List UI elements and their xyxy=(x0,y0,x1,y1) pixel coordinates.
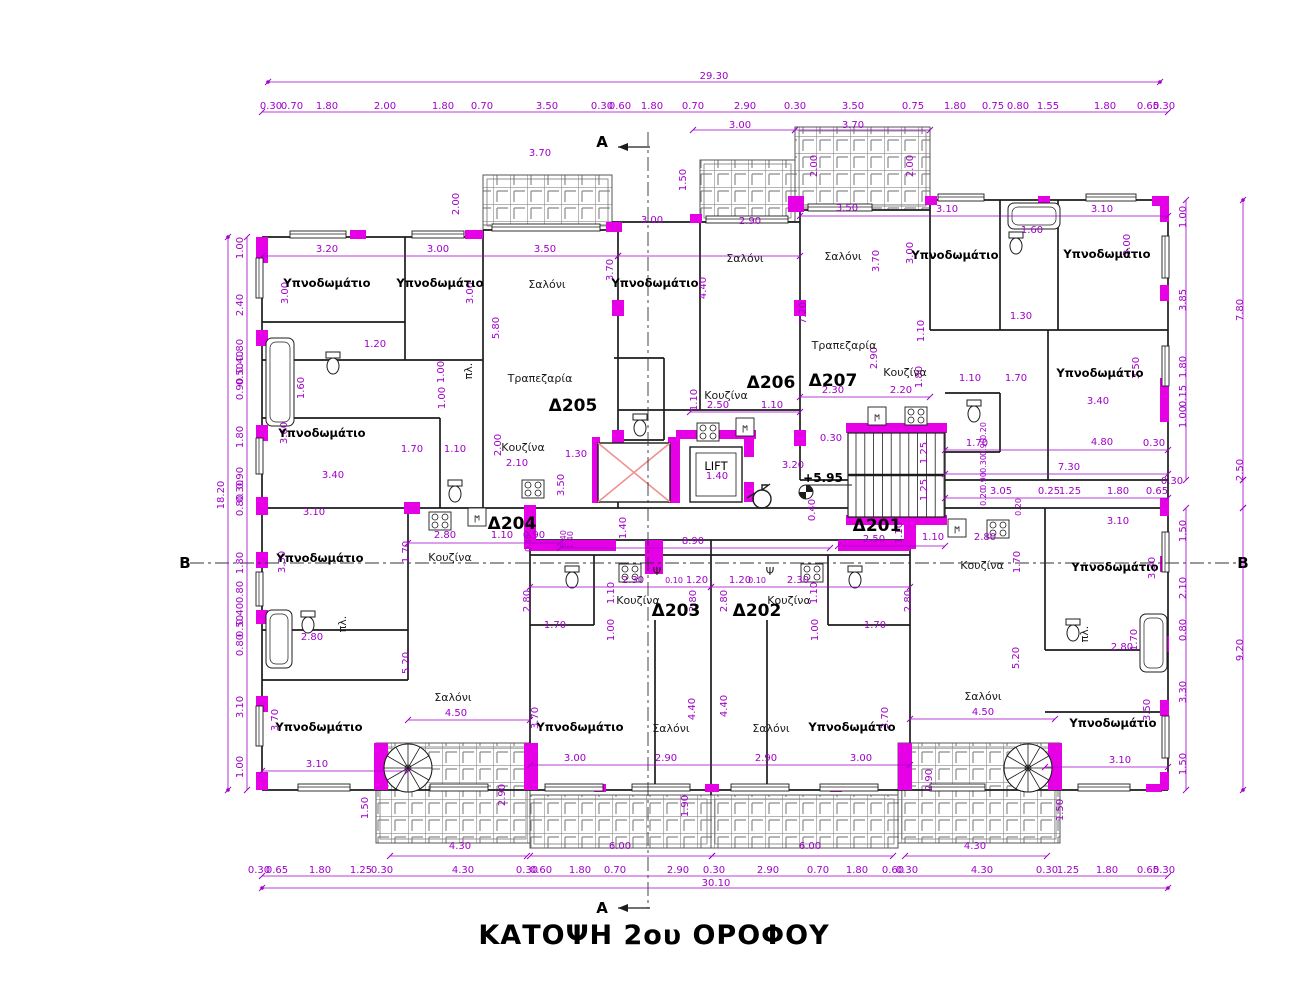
dimension-label: 1.25 xyxy=(919,442,930,464)
dimension-label: 1.70 xyxy=(864,620,886,631)
dimension-label: 3.10 xyxy=(303,507,325,518)
dimension-label: 0.75 xyxy=(982,101,1004,112)
window xyxy=(1086,194,1136,201)
dimension-label: 1.00 xyxy=(436,361,447,383)
dimension-label: 1.00 xyxy=(1178,206,1189,228)
dimension-label: 2.90 xyxy=(757,865,779,876)
room-label: Ψ xyxy=(766,565,775,578)
dimension-label: 1.80 xyxy=(1178,356,1189,378)
dimension-label: 2.80 xyxy=(301,632,323,643)
toilet-icon xyxy=(848,566,862,588)
dimension-label: 1.40 xyxy=(706,471,728,482)
fridge-icon: ϻ xyxy=(868,407,886,425)
dimension-label: 3.40 xyxy=(322,470,344,481)
dimension-label: 2.80 xyxy=(974,532,996,543)
dimension-label: 1.80 xyxy=(235,552,246,574)
room-label: Υπνοδωμάτιο xyxy=(1055,366,1143,380)
apartment-label-δ203: Δ203 xyxy=(652,601,701,621)
fridge-icon: ϻ xyxy=(736,418,754,436)
dimension-label: 1.80 xyxy=(1096,865,1118,876)
dimension-label: 0.40 xyxy=(807,499,818,521)
dimension-label: 0.15 xyxy=(1178,385,1189,407)
dimension-label: 1.40 xyxy=(566,531,575,549)
dimension-label: 3.10 xyxy=(1109,755,1131,766)
dimension-label: 1.50 xyxy=(1178,753,1189,775)
balcony xyxy=(483,175,612,230)
dimension-label: 5.20 xyxy=(1011,647,1022,669)
dimension-label: 4.30 xyxy=(964,841,986,852)
dimension-label: 2.00 xyxy=(905,155,916,177)
dimension-label: 4.30 xyxy=(971,865,993,876)
dimension-label: 1.80 xyxy=(235,426,246,448)
wall-pier xyxy=(465,230,483,239)
wall-pier xyxy=(846,423,947,433)
dimension-label: 0.90 xyxy=(979,438,988,456)
wall-pier xyxy=(350,230,366,239)
dimension-label: 1.30 xyxy=(565,449,587,460)
dimension-label: 2.30 xyxy=(787,575,809,586)
dimension-label: 1.00 xyxy=(437,387,448,409)
room-label: Ψ xyxy=(653,565,662,578)
dimension-label: 1.70 xyxy=(1005,373,1027,384)
dimension-label: 3.70 xyxy=(871,250,882,272)
dimension-label: 1.10 xyxy=(689,389,700,411)
dimension-label: 4.40 xyxy=(687,698,698,720)
dimension-label: 4.50 xyxy=(445,708,467,719)
dimension-label: 1.50 xyxy=(1178,520,1189,542)
dimension-label: 0.70 xyxy=(471,101,493,112)
light-well xyxy=(598,443,670,502)
wall-pier xyxy=(256,552,268,568)
dimension-label: 3.50 xyxy=(836,203,858,214)
window xyxy=(492,224,600,231)
dimension-label: 4.80 xyxy=(1091,437,1113,448)
dimension-label: 1.80 xyxy=(1107,486,1129,497)
wall-pier xyxy=(606,222,622,232)
dimension-label: 2.50 xyxy=(1235,459,1246,481)
dimension-label: 0.90 xyxy=(979,472,988,490)
dimension-label: 1.55 xyxy=(1037,101,1059,112)
window xyxy=(731,784,789,791)
dimension-label: 1.80 xyxy=(846,865,868,876)
dimension-label: 0.30 xyxy=(371,865,393,876)
dimension-label: 1.80 xyxy=(944,101,966,112)
dimension-label: 2.00 xyxy=(451,193,462,215)
dimension-label: 1.10 xyxy=(916,320,927,342)
dimension-label: 29.30 xyxy=(700,71,729,82)
room-label: Υπνοδωμάτιο xyxy=(274,720,362,734)
dimension-label: 1.80 xyxy=(641,101,663,112)
apartment-label-δ207: Δ207 xyxy=(809,371,858,391)
room-label: Υπνοδωμάτιο xyxy=(807,720,895,734)
level-marker: +5.95 xyxy=(799,471,852,499)
dimension-label: 0.10 xyxy=(748,576,766,585)
dimension-label: 2.30 xyxy=(622,575,644,586)
dimension-label: 1.25 xyxy=(1057,865,1079,876)
wall-pier xyxy=(1146,784,1162,792)
dimension-label: 1.70 xyxy=(401,444,423,455)
dimension-label: 3.10 xyxy=(936,204,958,215)
dimension-label: 0.30 xyxy=(1036,865,1058,876)
dimension-label: 3.40 xyxy=(1087,396,1109,407)
room-label: Σαλόνι xyxy=(726,252,764,265)
room-label: Υπνοδωμάτιο xyxy=(910,248,998,262)
dimension-label: 0.20 xyxy=(1014,498,1023,516)
dimension-label: 0.65 xyxy=(1146,486,1168,497)
dimension-label: 30.10 xyxy=(702,878,731,889)
dimension-label: 2.10 xyxy=(1178,577,1189,599)
dimension-label: 5.80 xyxy=(491,317,502,339)
room-label: Υπνοδωμάτιο xyxy=(277,426,365,440)
dimension-label: 3.50 xyxy=(556,474,567,496)
dimension-label: 1.80 xyxy=(1094,101,1116,112)
dimension-label: 0.10 xyxy=(665,576,683,585)
wall-pier xyxy=(794,430,806,446)
dimension-label: 2.90 xyxy=(924,769,935,791)
dimension-label: 1.00 xyxy=(810,619,821,641)
dimension-label: 1.50 xyxy=(1055,799,1066,821)
dimension-label: 0.60 xyxy=(609,101,631,112)
dimension-label: 1.60 xyxy=(296,377,307,399)
dimension-label: 1.80 xyxy=(316,101,338,112)
dimension-label: 3.30 xyxy=(1178,681,1189,703)
main-staircase xyxy=(848,433,945,517)
dimension-label: 1.25 xyxy=(350,865,372,876)
dimension-label: 9.20 xyxy=(1235,639,1246,661)
spiral-staircase-left xyxy=(384,744,432,792)
room-label: πλ. xyxy=(462,363,475,380)
apartment-label-δ206: Δ206 xyxy=(747,373,796,393)
toilet-icon xyxy=(326,352,340,374)
window xyxy=(298,784,350,791)
room-label: Κουζίνα xyxy=(960,559,1003,572)
dimension-label: 0.70 xyxy=(807,865,829,876)
dimension-label: 1.00 xyxy=(1178,406,1189,428)
dimension-label: 2.80 xyxy=(719,590,730,612)
window xyxy=(290,231,346,238)
floor-plan-drawing: LIFTϻϻϻϻ+5.95AABB29.303.003.700.300.701.… xyxy=(0,0,1308,981)
wall-pier xyxy=(256,772,268,790)
svg-text:ϻ: ϻ xyxy=(474,514,480,524)
window xyxy=(1162,346,1169,386)
dimension-label: 3.10 xyxy=(1091,204,1113,215)
wall-pier xyxy=(612,300,624,316)
fridge-icon: ϻ xyxy=(948,519,966,537)
svg-text:ϻ: ϻ xyxy=(954,525,960,535)
dimension-label: 18.20 xyxy=(216,481,227,510)
spiral-staircase-right xyxy=(1004,744,1052,792)
dimension-label: 3.70 xyxy=(842,120,864,131)
dimension-label: 3.10 xyxy=(1107,516,1129,527)
dimension-label: 0.90 xyxy=(235,378,246,400)
dimension-label: 0.80 xyxy=(235,494,246,516)
wall-pier xyxy=(1160,196,1169,222)
dimension-label: 6.00 xyxy=(799,841,821,852)
dimension-label: 3.20 xyxy=(316,244,338,255)
room-label: Υπνοδωμάτιο xyxy=(610,276,698,290)
dimension-endpoint xyxy=(1241,788,1245,792)
dimension-label: 2.90 xyxy=(497,784,508,806)
wall-pier xyxy=(690,214,702,223)
stove-icon xyxy=(905,407,927,425)
dimension-label: 1.50 xyxy=(360,797,371,819)
level-label: +5.95 xyxy=(803,471,843,485)
dimension-label: 1.10 xyxy=(444,444,466,455)
toilet-icon xyxy=(967,400,981,422)
section-marker-a-top: A xyxy=(596,133,608,151)
toilet-icon xyxy=(633,414,647,436)
dimension-label: 1.25 xyxy=(919,479,930,501)
dimension-label: 1.60 xyxy=(1021,225,1043,236)
room-label: Σαλόνι xyxy=(964,690,1002,703)
dimension-label: 2.80 xyxy=(434,530,456,541)
dimension-label: 1.70 xyxy=(544,620,566,631)
dimension-label: 1.80 xyxy=(432,101,454,112)
toilet-icon xyxy=(301,611,315,633)
dimension-label: 1.30 xyxy=(1010,311,1032,322)
dimension-label: 0.30 xyxy=(1153,101,1175,112)
section-arrow xyxy=(618,904,628,912)
dimension-label: 2.80 xyxy=(522,590,533,612)
dimension-label: 3.00 xyxy=(850,753,872,764)
dimension-label: 4.50 xyxy=(972,707,994,718)
apartment-label-δ201: Δ201 xyxy=(853,516,902,536)
room-label: Υπνοδωμάτιο xyxy=(275,551,363,565)
dimension-label: 7.30 xyxy=(1058,462,1080,473)
dimension-label: 0.30 xyxy=(1143,438,1165,449)
dimension-label: 5.20 xyxy=(401,652,412,674)
dimension-endpoint xyxy=(1166,886,1170,890)
room-label: Υπνοδωμάτιο xyxy=(1070,560,1158,574)
dimension-label: 0.20 xyxy=(979,422,988,440)
window xyxy=(430,784,488,791)
dimension-label: 1.20 xyxy=(686,575,708,586)
room-label: Κουζίνα xyxy=(501,441,544,454)
wall-pier xyxy=(524,743,538,790)
apartment-label-δ204: Δ204 xyxy=(488,514,537,534)
window xyxy=(1162,532,1169,572)
room-label: Σαλόνι xyxy=(528,278,566,291)
dimension-label: 2.10 xyxy=(506,458,528,469)
floor-plan-page: LIFTϻϻϻϻ+5.95AABB29.303.003.700.300.701.… xyxy=(0,0,1308,981)
dimension-label: 3.50 xyxy=(536,101,558,112)
wall-pier xyxy=(1160,700,1169,716)
room-label: πλ. xyxy=(1078,626,1091,643)
wall-pier xyxy=(404,502,420,514)
wall-pier xyxy=(256,497,268,515)
dimension-endpoint xyxy=(1158,80,1162,84)
wall-pier xyxy=(1160,285,1169,301)
dimension-label: 4.40 xyxy=(719,695,730,717)
dimension-endpoint xyxy=(226,235,230,239)
dimension-label: 1.40 xyxy=(618,517,629,539)
window xyxy=(1162,236,1169,278)
section-marker-a-bottom: A xyxy=(596,899,608,917)
window xyxy=(930,784,985,791)
dimension-label: 7.80 xyxy=(1235,299,1246,321)
dimension-label: 0.65 xyxy=(266,865,288,876)
room-label: Υπνοδωμάτιο xyxy=(1068,716,1156,730)
dimension-label: 3.50 xyxy=(534,244,556,255)
dimension-label: 1.70 xyxy=(1129,629,1140,651)
dimension-label: 0.75 xyxy=(902,101,924,112)
dimension-label: 7.20 xyxy=(798,302,809,324)
window xyxy=(256,572,263,606)
wall-pier xyxy=(898,743,912,790)
window xyxy=(1162,716,1169,758)
dimension-label: 3.00 xyxy=(641,215,663,226)
wall-pier xyxy=(788,196,804,212)
window xyxy=(632,784,690,791)
dimension-label: 0.30 xyxy=(260,101,282,112)
dimension-label: 3.10 xyxy=(306,759,328,770)
toilet-icon xyxy=(448,480,462,502)
dimension-label: 2.90 xyxy=(739,216,761,227)
wall-pier xyxy=(744,437,754,457)
dimension-label: 1.70 xyxy=(401,541,412,563)
dimension-label: 1.00 xyxy=(235,237,246,259)
dimension-label: 3.70 xyxy=(529,148,551,159)
window xyxy=(256,438,263,474)
room-label: Υπνοδωμάτιο xyxy=(535,720,623,734)
dimension-label: 2.90 xyxy=(755,753,777,764)
dimension-label: 2.40 xyxy=(235,294,246,316)
dimension-label: 3.85 xyxy=(1178,289,1189,311)
dimension-label: 1.10 xyxy=(922,532,944,543)
dimension-label: 3.50 xyxy=(842,101,864,112)
dimension-label: 2.20 xyxy=(890,385,912,396)
wall-pier xyxy=(1160,498,1169,516)
room-label: Κουζίνα xyxy=(428,551,471,564)
stove-icon xyxy=(697,423,719,441)
dimension-label: 0.70 xyxy=(281,101,303,112)
section-marker-b-left: B xyxy=(179,554,190,572)
room-label: Σαλόνι xyxy=(752,722,790,735)
dimension-label: 0.30 xyxy=(979,455,988,473)
window xyxy=(1078,784,1130,791)
window xyxy=(938,194,984,201)
toilet-icon xyxy=(565,566,579,588)
dimension-label: 0.30 xyxy=(703,865,725,876)
room-label: Σαλόνι xyxy=(824,250,862,263)
dimension-label: 0.80 xyxy=(235,634,246,656)
dimension-label: 0.70 xyxy=(682,101,704,112)
dimension-label: 3.00 xyxy=(729,120,751,131)
dimension-label: 0.50 xyxy=(235,615,246,637)
window xyxy=(256,706,263,746)
svg-text:ϻ: ϻ xyxy=(742,424,748,434)
dimension-label: 2.90 xyxy=(734,101,756,112)
dimension-label: 1.00 xyxy=(606,619,617,641)
apartment-label-δ205: Δ205 xyxy=(549,396,598,416)
dimension-label: 0.30 xyxy=(784,101,806,112)
room-label: Σαλόνι xyxy=(652,722,690,735)
dimension-label: 0.60 xyxy=(530,865,552,876)
fridge-icon: ϻ xyxy=(468,508,486,526)
dimension-label: 3.00 xyxy=(427,244,449,255)
dimension-label: 1.20 xyxy=(364,339,386,350)
dimension-label: 2.00 xyxy=(374,101,396,112)
dimension-label: 2.00 xyxy=(809,155,820,177)
room-label: Υπνοδωμάτιο xyxy=(395,276,483,290)
dimension-label: 1.10 xyxy=(761,400,783,411)
drawing-title: ΚΑΤΟΨΗ 2ου ΟΡΟΦΟΥ xyxy=(0,920,1308,951)
dimension-label: 3.05 xyxy=(990,486,1012,497)
room-label: Κουζίνα xyxy=(883,366,926,379)
room-label: Τραπεζαρία xyxy=(811,339,877,352)
apartment-label-δ202: Δ202 xyxy=(733,601,782,621)
dimension-label: 1.80 xyxy=(569,865,591,876)
dimension-label: 6.00 xyxy=(609,841,631,852)
dimension-label: 0.80 xyxy=(1178,619,1189,641)
dimension-label: 3.00 xyxy=(564,753,586,764)
dimension-label: 1.25 xyxy=(1059,486,1081,497)
window xyxy=(545,784,603,791)
section-arrow xyxy=(618,143,628,151)
dimension-label: 1.80 xyxy=(309,865,331,876)
dimension-label: 0.20 xyxy=(979,488,988,506)
dimension-label: 4.40 xyxy=(698,277,709,299)
dimension-label: 3.20 xyxy=(782,460,804,471)
room-label: Σαλόνι xyxy=(434,691,472,704)
svg-text:ϻ: ϻ xyxy=(874,413,880,423)
dimension-label: 0.80 xyxy=(1007,101,1029,112)
dimension-label: 0.70 xyxy=(604,865,626,876)
window xyxy=(412,231,464,238)
dimension-label: 2.90 xyxy=(655,753,677,764)
dimension-label: 1.10 xyxy=(959,373,981,384)
dimension-endpoint xyxy=(260,886,264,890)
dimension-endpoint xyxy=(226,788,230,792)
dimension-label: 8.90 xyxy=(682,536,704,547)
room-label: Υπνοδωμάτιο xyxy=(282,276,370,290)
dimension-label: 0.30 xyxy=(896,865,918,876)
dimension-label: 2.90 xyxy=(667,865,689,876)
stove-icon xyxy=(522,480,544,498)
dimension-label: 0.30 xyxy=(820,433,842,444)
balcony xyxy=(700,160,795,222)
dimension-label: 0.25 xyxy=(1038,486,1060,497)
window xyxy=(256,258,263,298)
room-label: πλ. xyxy=(336,616,349,633)
room-label: Κουζίνα xyxy=(704,389,747,402)
room-label: Τραπεζαρία xyxy=(507,372,573,385)
dimension-label: 4.30 xyxy=(452,865,474,876)
dimension-endpoint xyxy=(266,80,270,84)
dimension-endpoint xyxy=(1241,198,1245,202)
stove-icon xyxy=(429,512,451,530)
dimension-label: 1.50 xyxy=(678,169,689,191)
dimension-label: 0.80 xyxy=(235,581,246,603)
dimension-label: 1.70 xyxy=(1012,551,1023,573)
room-label: Υπνοδωμάτιο xyxy=(1062,247,1150,261)
dimension-label: 1.90 xyxy=(680,795,691,817)
window xyxy=(820,784,878,791)
dimension-label: 0.30 xyxy=(1153,865,1175,876)
dimension-label: 2.80 xyxy=(903,590,914,612)
dimension-label: 3.10 xyxy=(235,696,246,718)
wall-pier xyxy=(705,784,719,792)
dimension-label: 4.30 xyxy=(449,841,471,852)
dimension-label: 1.00 xyxy=(235,756,246,778)
